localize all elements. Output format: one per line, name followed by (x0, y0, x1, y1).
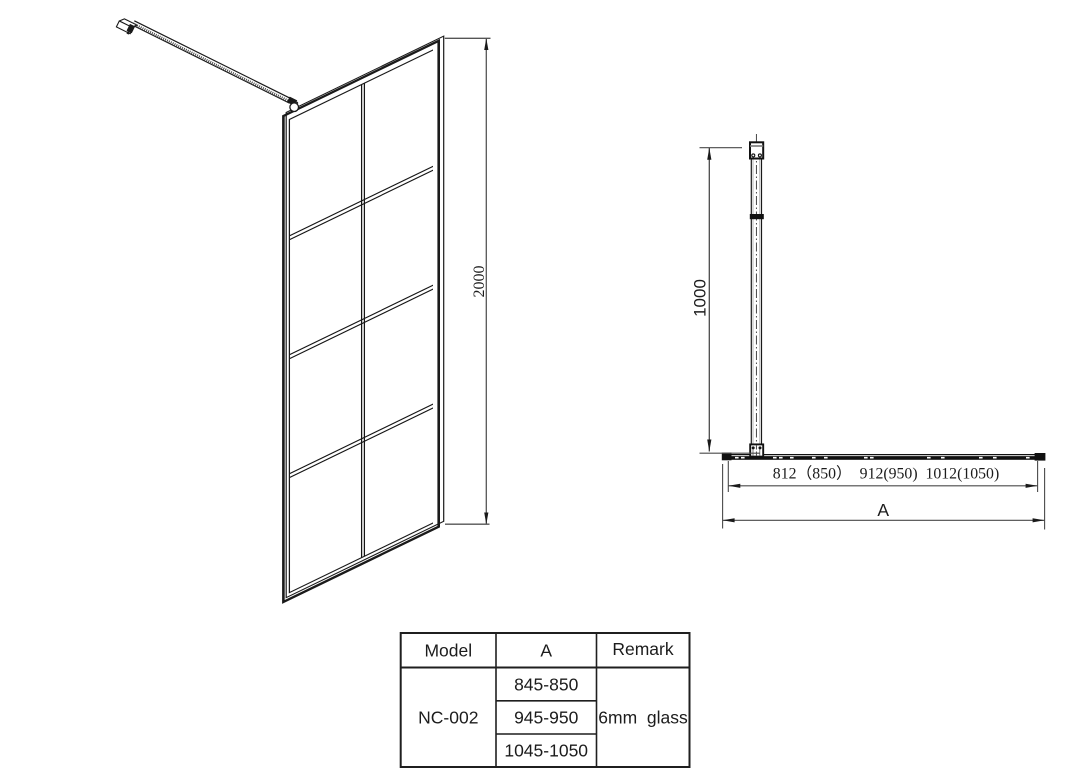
svg-text:Remark: Remark (612, 639, 674, 659)
svg-text:845-850: 845-850 (514, 674, 578, 694)
svg-text:1000: 1000 (690, 279, 709, 317)
svg-text:NC-002: NC-002 (418, 708, 478, 728)
svg-text:812（850） 912(950) 1012(1050): 812（850） 912(950) 1012(1050) (773, 465, 999, 483)
svg-text:6mm glass: 6mm glass (598, 708, 688, 728)
svg-text:1045-1050: 1045-1050 (504, 741, 588, 761)
svg-text:Model: Model (424, 641, 472, 661)
svg-text:2000: 2000 (471, 266, 488, 298)
svg-text:A: A (540, 641, 552, 661)
svg-text:A: A (877, 500, 889, 520)
svg-text:945-950: 945-950 (514, 708, 578, 728)
